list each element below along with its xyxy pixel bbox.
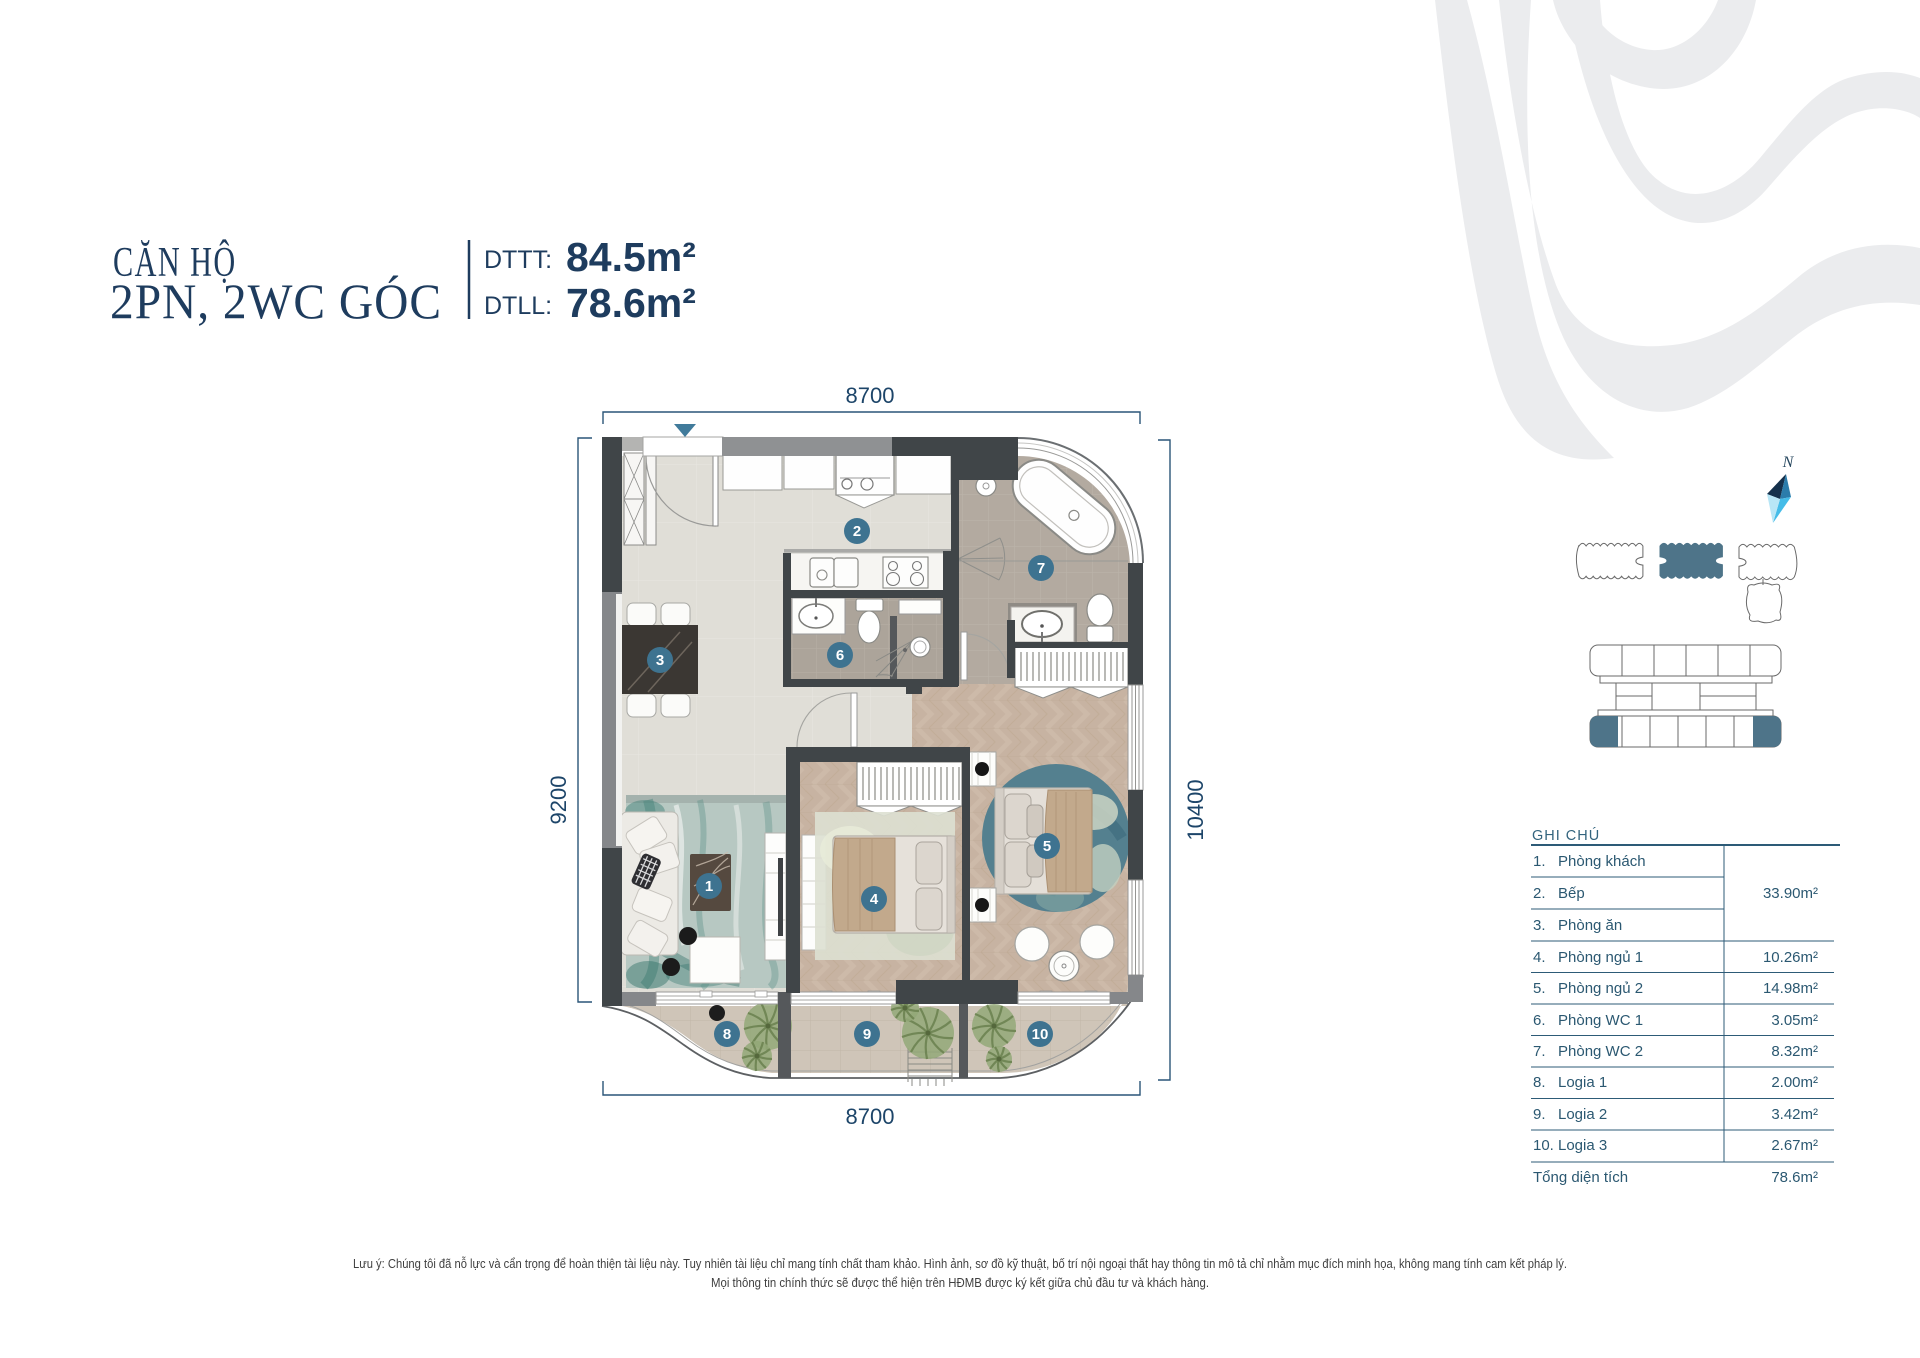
svg-text:Mọi thông tin chính thức sẽ đư: Mọi thông tin chính thức sẽ được thể hiệ…: [711, 1275, 1209, 1290]
svg-text:8: 8: [723, 1026, 731, 1043]
svg-text:7: 7: [1037, 560, 1045, 577]
svg-text:Phòng WC 1: Phòng WC 1: [1558, 1012, 1643, 1029]
svg-text:2.67m²: 2.67m²: [1771, 1137, 1818, 1154]
svg-text:5: 5: [1043, 838, 1051, 855]
svg-text:8.32m²: 8.32m²: [1771, 1043, 1818, 1060]
svg-text:9200: 9200: [546, 776, 571, 825]
svg-text:Logia 3: Logia 3: [1558, 1137, 1607, 1154]
svg-text:4: 4: [870, 891, 879, 908]
svg-text:3: 3: [656, 652, 664, 669]
svg-text:10.26m²: 10.26m²: [1763, 949, 1818, 966]
svg-text:N: N: [1782, 454, 1795, 471]
svg-text:4.: 4.: [1533, 949, 1546, 966]
svg-text:7.: 7.: [1533, 1043, 1546, 1060]
svg-text:9: 9: [863, 1026, 871, 1043]
svg-text:14.98m²: 14.98m²: [1763, 980, 1818, 997]
svg-text:33.90m²: 33.90m²: [1763, 885, 1818, 902]
svg-text:84.5m²: 84.5m²: [566, 234, 696, 280]
svg-text:Tổng diện tích: Tổng diện tích: [1533, 1169, 1628, 1186]
svg-text:2.00m²: 2.00m²: [1771, 1074, 1818, 1091]
svg-text:8700: 8700: [846, 383, 895, 408]
svg-text:10: 10: [1032, 1026, 1049, 1043]
svg-text:GHI CHÚ: GHI CHÚ: [1532, 827, 1600, 844]
svg-text:Lưu ý: Chúng tôi đã nỗ lực và: Lưu ý: Chúng tôi đã nỗ lực và cẩn trọng …: [353, 1256, 1567, 1271]
svg-text:78.6m²: 78.6m²: [566, 280, 696, 326]
svg-text:DTTT:: DTTT:: [484, 246, 552, 274]
svg-text:Bếp: Bếp: [1558, 885, 1585, 902]
svg-text:5.: 5.: [1533, 980, 1546, 997]
svg-text:2PN, 2WC GÓC: 2PN, 2WC GÓC: [110, 274, 442, 329]
svg-text:6: 6: [836, 647, 844, 664]
svg-text:78.6m²: 78.6m²: [1771, 1169, 1818, 1186]
svg-text:10400: 10400: [1183, 779, 1208, 840]
svg-text:8700: 8700: [846, 1104, 895, 1129]
svg-text:3.: 3.: [1533, 917, 1546, 934]
svg-text:9.: 9.: [1533, 1106, 1546, 1123]
svg-text:1: 1: [705, 878, 713, 895]
svg-text:Phòng ngủ 1: Phòng ngủ 1: [1558, 949, 1643, 966]
svg-text:8.: 8.: [1533, 1074, 1546, 1091]
svg-text:Logia 2: Logia 2: [1558, 1106, 1607, 1123]
svg-text:Phòng ngủ 2: Phòng ngủ 2: [1558, 980, 1643, 997]
svg-text:Logia 1: Logia 1: [1558, 1074, 1607, 1091]
svg-text:6.: 6.: [1533, 1012, 1546, 1029]
svg-text:2: 2: [853, 523, 861, 540]
svg-text:3.42m²: 3.42m²: [1771, 1106, 1818, 1123]
svg-text:2.: 2.: [1533, 885, 1546, 902]
svg-text:Phòng khách: Phòng khách: [1558, 853, 1646, 870]
svg-text:3.05m²: 3.05m²: [1771, 1012, 1818, 1029]
svg-text:DTLL:: DTLL:: [484, 292, 552, 320]
svg-text:10.: 10.: [1533, 1137, 1554, 1154]
svg-text:1.: 1.: [1533, 853, 1546, 870]
svg-text:Phòng WC 2: Phòng WC 2: [1558, 1043, 1643, 1060]
svg-text:Phòng ăn: Phòng ăn: [1558, 917, 1622, 934]
